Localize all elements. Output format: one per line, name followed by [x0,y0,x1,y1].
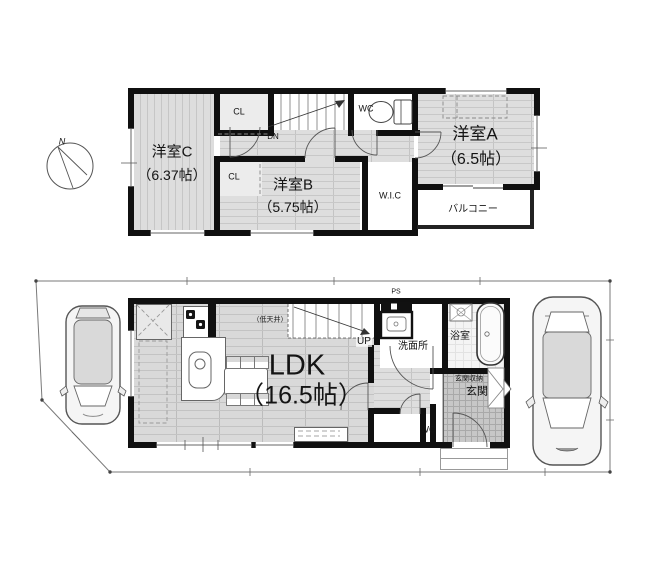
pipe-space-label: PS [391,289,400,296]
closet-top-label: CL [233,108,245,117]
entrance-doorway [452,442,490,448]
window [128,128,134,187]
closet-b-label: CL [228,173,240,182]
window [445,88,507,94]
wall [442,298,448,374]
wall [368,345,374,383]
entrance-storage-label: 玄関収納 [455,376,483,383]
wall [362,156,368,236]
stairs-1f [288,304,374,338]
window [250,230,314,236]
washroom-floor [380,304,442,368]
entrance-tile [436,374,504,442]
ldk-size: （16.5帖） [239,384,363,409]
wall [368,410,374,442]
wall [268,94,274,132]
car-right-icon [526,297,608,465]
wall [214,158,220,236]
window [128,330,134,397]
window [150,230,205,236]
wc-2f-label: WC [359,105,374,114]
entrance-label: 玄関 [466,387,488,398]
room-b-label: 洋室B [273,178,313,193]
room-c-label: 洋室C [152,145,193,160]
room-c-size: （6.37帖） [137,168,206,182]
stairs-down-label: DN [267,133,279,141]
compass-icon [47,143,93,189]
bathroom-label: 浴室 [450,332,470,342]
wall [348,130,352,136]
wall [430,368,510,374]
wall [208,304,216,337]
wall [348,88,354,136]
plan-linework [0,0,651,562]
wall [430,404,436,442]
ldk-label: LDK [269,352,325,381]
room-b-size: （5.75帖） [258,200,327,214]
window [534,115,540,172]
car-left-icon [60,306,126,424]
wall [128,298,510,304]
wall [374,298,380,345]
wall [214,156,305,162]
tv-board [294,427,348,442]
washroom-label: 洗面所 [398,342,428,352]
floor-plan-page: N 洋室C （6.37帖） 洋室B （5.75帖） 洋室A （6.5帖） CL … [0,0,651,562]
chair [240,356,255,369]
room-a-size: （6.5帖） [441,152,511,168]
low-ceiling-label: （低天井） [253,317,288,324]
room-a-label: 洋室A [452,126,497,143]
stairs-up-label: UP [356,337,372,347]
wall [214,88,220,132]
stairs-2f [274,94,348,130]
closet-b [218,162,262,196]
sliding-door [443,184,503,190]
wic-label: W.I.C [379,192,401,201]
balcony-label: バルコニー [448,205,498,215]
kitchen-counter [181,337,226,401]
refrigerator-space [136,304,172,340]
chair [226,356,241,369]
chair [254,356,269,369]
wall [368,408,400,414]
balcony-parapet [417,225,534,229]
compass-north-label: N [59,138,66,147]
balcony-parapet [530,190,534,229]
porch-step [440,458,508,470]
window [255,442,294,448]
window [156,442,252,448]
wc-1f-label: WC [421,426,436,435]
entrance-step [436,374,444,442]
wc-1f-room [374,414,420,442]
room-yoshitsu-c-floor [134,94,214,230]
stove-icon [183,306,211,339]
wall [214,130,274,136]
wall [412,88,418,132]
